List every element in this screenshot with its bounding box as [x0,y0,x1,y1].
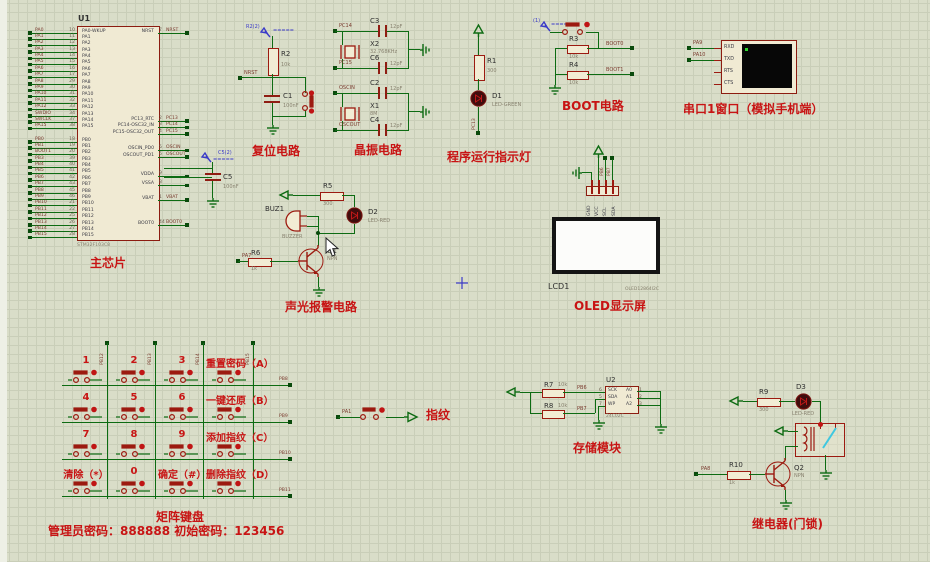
power-terminal-icon[interactable] [774,425,789,437]
pin-net-label: PA11 [35,98,46,103]
fingerprint-button-icon[interactable] [358,403,388,421]
pin-net-label: BOOT0 [166,220,182,225]
ground-icon[interactable] [779,500,793,510]
pin-net-label: OSCOUT [166,152,186,157]
resistor-r5[interactable] [320,192,344,201]
pin-name: PC15-OSC32_OUT [100,130,154,135]
storage-section: R7 10k R8 10k PB6 PB7 U2 6 SCK 5 SDA 7 W… [498,362,688,457]
nrst-net-label: NRST [244,70,257,76]
pin-name: PA12 [82,105,93,110]
r1-ref: R1 [487,57,496,65]
xtal-bot-net: PC15 [339,60,352,66]
pin-net-label: PA3 [35,47,44,52]
pin-net-label: PB5 [35,168,44,173]
reset-annotation: R2(2) [246,24,260,30]
terminal-pin-names: RXDTXDRTSCTS [724,42,734,90]
key-button-icon[interactable] [116,442,150,458]
pin-net-label: PA6 [35,66,44,71]
key-button-icon[interactable] [212,479,246,495]
r4-value: 10k [569,80,578,86]
pin-name: PB13 [82,221,94,226]
keypad-key[interactable]: 一键还原（B） [206,392,284,429]
lcd1-ref: LCD1 [548,283,569,291]
crosshair-icon [456,277,468,289]
cap-bot-ref: C4 [370,116,379,124]
chip-pin-row[interactable]: PB15 28 PB15 [28,234,158,240]
keypad-key[interactable]: 重置密码（A） [206,355,284,392]
pin-number: 40 [61,162,75,167]
keypad-key[interactable]: 删除指纹（D） [206,466,284,503]
keypad-key[interactable]: 3 [158,355,206,392]
pin-name: PA8 [82,80,91,85]
pin-net-label: PB13 [35,220,47,225]
pin-net-label: PA12 [35,104,46,109]
resistor-r3[interactable] [567,45,589,54]
oled-pin-names: GNDVCCSCLSDA [587,198,617,216]
keypad-key[interactable]: 添加指纹（C） [206,429,284,466]
pin-name: VDDA [100,172,154,177]
pin-net-label: PC14 [166,122,178,127]
r4-ref: R4 [569,61,578,69]
capacitor-icon[interactable] [378,124,387,136]
pin-number: 42 [61,175,75,180]
power-terminal-icon[interactable] [729,395,744,407]
pin-net-label: PB0 [35,137,44,142]
pin-net-label: PA5 [35,59,44,64]
ground-icon[interactable] [819,470,833,480]
pin-net-label: SWCLK [35,117,51,122]
keypad-key[interactable]: 0 [110,466,158,503]
pin-number: 30 [61,85,75,90]
pin-number: 11 [61,34,75,39]
c5-annotation-marks: ===== [213,157,234,163]
key-label: 4 [62,392,110,403]
key-button-icon[interactable] [212,368,246,384]
pin-number: 38 [61,123,75,128]
u2-part: 24C02C [606,414,624,420]
key-label: 6 [158,392,206,403]
cap-top-ref: C2 [370,79,379,87]
pin-net-label: PB15 [35,232,47,237]
pin-wire [158,33,186,34]
key-label: 1 [62,355,110,366]
keypad-label: 矩阵键盘 [156,511,204,524]
key-button-icon[interactable] [212,442,246,458]
pin-number: 29 [61,79,75,84]
r10-ref: R10 [729,461,743,469]
pin-net-label: PB10 [35,200,47,205]
ground-icon[interactable] [312,287,326,297]
pin-number: 28 [61,232,75,237]
pin-net-label: PB8 [35,188,44,193]
q2-ref: Q2 [794,464,804,472]
fingerprint-label: 指纹 [426,409,450,422]
buzzer-value: BUZZER [282,234,303,240]
pin-number: 19 [61,143,75,148]
led-d2-icon[interactable] [346,207,363,224]
keypad-key[interactable]: 6 [158,392,206,429]
key-button-icon[interactable] [68,405,102,421]
pin-name: PB11 [82,208,94,213]
keypad-grid: 1 2 [62,355,284,503]
key-label: 3 [158,355,206,366]
crystal-icon[interactable] [336,106,364,122]
storage-label: 存储模块 [573,442,621,455]
key-button-icon[interactable] [68,479,102,495]
pin-name: OSCOUT_PD1 [100,153,154,158]
pin-name: PA4 [82,54,91,59]
crystal-group: PC14 C3 12pF X2 32.768KHz [332,16,437,76]
eeprom-pin: A1 2 [498,395,648,402]
keypad-key[interactable]: 1 [62,355,110,392]
ground-icon[interactable] [266,125,280,135]
keypad-key[interactable]: 8 [110,429,158,466]
resistor-r10[interactable] [727,471,751,480]
pin-net-label: PC15 [166,129,178,134]
boot-circuit-label: BOOT电路 [562,100,624,113]
pin-net-label: PA2 [35,40,44,45]
oled-section: PB6 PB7 GNDVCCSCLSDA LCD1 OLED12864I2C O… [540,142,712,320]
oled-part: OLED12864I2C [625,287,659,293]
pin-net-label: SWDIO [35,111,51,116]
r9-value: 300 [759,407,769,413]
pin-number: 33 [61,104,75,109]
pin-wire [158,134,186,135]
ground-icon[interactable] [592,420,606,430]
r3-value: 10k [569,54,578,60]
pin-name: PB2 [82,150,91,155]
pin-name: PA15 [82,124,93,129]
pin-name: OSCIN_PD0 [100,146,154,151]
q2-value: NPN [794,473,805,479]
pin-name: PA9 [82,86,91,91]
pin-net-label: PB14 [35,226,47,231]
relay-lever-icon [821,426,838,450]
keypad-passwords: 管理员密码：888888 初始密码：123456 [48,525,284,538]
pin-name: PC13_RTC [100,117,154,122]
pin-name: PA5 [82,60,91,65]
pin-number: 43 [61,181,75,186]
pin-net-label: PA1 [35,34,44,39]
boot1-net-label: BOOT1 [606,67,623,73]
pa10-net-label: PA10 [693,52,705,58]
capacitor-icon[interactable] [378,25,387,37]
terminal-cursor [745,48,748,51]
pin-name: PA11 [82,99,93,104]
ground-icon[interactable] [654,424,668,434]
transistor-q2-icon[interactable] [765,458,791,490]
pc13-net-label: PC13 [472,110,478,130]
pin-net-label: PB1 [35,143,44,148]
ground-icon[interactable] [420,105,430,119]
pin-net-label: PB3 [35,156,44,161]
pin-pad [185,184,189,188]
pin-net-label: PA9 [35,85,44,90]
oled-pin-name: VCC [595,198,600,216]
pin-number: 12 [61,40,75,45]
terminal-pin-name: RXD [724,42,734,54]
pin-pad [185,126,189,130]
buzzer-icon[interactable] [285,210,309,232]
key-button-icon[interactable] [116,368,150,384]
eeprom-pin: A0 1 [498,388,648,395]
relay-label: 继电器(门锁) [752,518,823,531]
key-button-icon[interactable] [164,442,198,458]
mouse-cursor [325,238,339,258]
keypad-key[interactable]: 确定（#） [158,466,206,503]
pin-wire [158,225,186,226]
pin-wire [31,237,77,238]
pin-name: PB10 [82,201,94,206]
pin-number: 34 [61,111,75,116]
pin-number: 21 [61,200,75,205]
pin-name: BOOT0 [100,221,154,226]
keypad-key[interactable]: 7 [62,429,110,466]
capacitor-c1[interactable] [264,95,280,103]
capacitor-icon[interactable] [378,62,387,74]
pin-net-label: VBAT [166,195,178,200]
c1-ref: C1 [283,92,292,100]
pin-name: PA1 [82,35,91,40]
pin-wire [158,157,186,158]
resistor-r2[interactable] [268,48,279,76]
cap-top-ref: C3 [370,17,379,25]
ground-icon[interactable] [570,166,582,180]
resistor-r8[interactable] [542,410,565,419]
pin-name: PB14 [82,227,94,232]
cap-bot-value: 12pF [390,123,402,129]
r5-value: 300 [323,201,333,207]
key-button-icon[interactable] [116,479,150,495]
key-label: 0 [110,466,158,477]
pin-name: PB5 [82,169,91,174]
r2-value: 10k [281,62,290,68]
pin-name: PA2 [82,41,91,46]
pin-number: 31 [61,91,75,96]
pin-pad [185,223,189,227]
pin-number: 39 [61,156,75,161]
cap-top-value: 12pF [390,86,402,92]
pin-name: PA14 [82,118,93,123]
eeprom-pin: A2 3 [498,402,648,409]
pin-net-label: PB6 [35,175,44,180]
boot0-net-label: BOOT0 [606,41,623,47]
chip-part-number: STM32F103C8 [77,243,110,249]
serial-terminal-section: PA9 PA10 RXDTXDRTSCTS 串口1窗口（模拟手机端） [678,32,830,120]
pin-wire [158,200,186,201]
pin-net-label: PA7 [35,72,44,77]
terminal-pin-name: CTS [724,78,734,90]
pin-name: PB4 [82,163,91,168]
pin-name: PA6 [82,67,91,72]
keypad-key[interactable]: 2 [110,355,158,392]
output-terminal-icon[interactable] [404,411,418,423]
xtal-ref: X2 [370,40,379,48]
pin-net-label: OSCIN [166,145,181,150]
pin-name: PB3 [82,157,91,162]
cap-top-value: 12pF [390,24,402,30]
terminal-pin-name: TXD [724,54,734,66]
pin-number: 45 [61,188,75,193]
pin-net-label: PB4 [35,162,44,167]
d3-value: LED-RED [792,411,814,417]
r10-value: 1k [729,480,735,486]
power-terminal-icon[interactable] [279,189,294,201]
pin-name: PB15 [82,233,94,238]
pin-number: 37 [61,117,75,122]
key-button-icon[interactable] [116,405,150,421]
keypad-section: PB12PB13PB14PB15 PB8PB9PB10PB11 1 [48,333,343,548]
pin-number: 26 [61,220,75,225]
keypad-key[interactable]: 4 [62,392,110,429]
indicator-label: 程序运行指示灯 [447,151,531,164]
power-terminal-icon[interactable] [472,24,485,38]
key-button-icon[interactable] [164,405,198,421]
reset-annotation-marks: ===== [273,28,294,34]
ground-icon[interactable] [548,85,562,95]
key-button-icon[interactable] [164,368,198,384]
oled-label: OLED显示屏 [574,300,646,313]
pin-pad [185,132,189,136]
proteus-schematic-canvas[interactable]: U1 PA0 10 PA0-WKUP PA1 11 PA1 [0,0,930,562]
key-button-icon[interactable] [68,368,102,384]
u2-ref: U2 [606,376,616,384]
crystal-icon[interactable] [336,44,364,60]
pin-name: PC14-OSC32_IN [100,123,154,128]
key-label: 2 [110,355,158,366]
keypad-key[interactable]: 清除（*） [62,466,110,503]
pin-name: PA7 [82,73,91,78]
resistor-r4[interactable] [567,71,589,80]
terminal-pin-name: RTS [724,66,734,78]
pin-number: 16 [61,66,75,71]
fingerprint-section: PA1 指纹 [334,398,474,438]
r9-ref: R9 [759,388,768,396]
pin-pad [185,198,189,202]
reset-pushbutton-icon[interactable] [298,90,318,114]
pin-number: 15 [61,59,75,64]
d1-value: LED-GREEN [492,102,521,108]
pin-pad [185,155,189,159]
ground-icon[interactable] [420,43,430,57]
pin-net-label: PB7 [35,181,44,186]
oled-pin-name: SDA [612,198,617,216]
crystal-group: OSCIN C2 12pF X1 8M [332,78,437,138]
pin-number: 41 [61,168,75,173]
pin-net-label: PA15 [35,123,46,128]
pin-name: PB8 [82,189,91,194]
c5-ref: C5 [223,173,232,181]
pin-net-label: BOOT1 [35,149,51,154]
boot-circuit-section: (1) ===== R3 10k BOOT0 R4 10k BOOT1 BOOT… [532,12,667,112]
pin-net-label: PA10 [35,91,46,96]
r1-value: 300 [487,68,497,74]
r6-ref: R6 [251,249,260,257]
pin-name: PB0 [82,138,91,143]
pin-name: PB12 [82,214,94,219]
d3-ref: D3 [796,383,806,391]
pin-net-label: PB12 [35,213,47,218]
pin-wire [31,128,77,129]
keypad-key[interactable]: 5 [110,392,158,429]
pa1-net-label: PA1 [342,409,351,415]
pin-number: 22 [61,207,75,212]
pin-name: NRST [100,29,154,34]
led-d3-icon[interactable] [795,393,812,410]
power-terminal-icon[interactable] [260,26,272,38]
pin-number: 20 [61,149,75,154]
pin-number: 25 [61,213,75,218]
c1-value: 100nF [283,103,299,109]
keypad-key[interactable]: 9 [158,429,206,466]
pin-net-label: PA8 [35,79,44,84]
resistor-r1[interactable] [474,55,485,81]
relay-coil-icon [798,426,818,452]
key-label: 7 [62,429,110,440]
oled-display[interactable] [552,217,660,274]
boot-pushbutton-icon[interactable] [561,20,593,36]
transistor-q1-icon[interactable] [298,245,324,277]
ground-icon[interactable] [206,198,220,208]
pin-name: PB9 [82,195,91,200]
pin-net-label: PB9 [35,194,44,199]
resistor-r9[interactable] [757,398,781,407]
serial-label: 串口1窗口（模拟手机端） [683,103,823,116]
key-button-icon[interactable] [212,405,246,421]
cap-bot-ref: C6 [370,54,379,62]
c5-annotation: C5(2) [218,150,232,156]
key-button-icon[interactable] [164,479,198,495]
pa9-net-label: PA9 [693,40,702,46]
capacitor-icon[interactable] [378,87,387,99]
pin-number: 14 [61,53,75,58]
eeprom-right-pins: A0 1 A1 2 A2 3 [498,388,648,409]
cap-bot-value: 12pF [390,61,402,67]
capacitor-c5[interactable] [205,173,221,181]
pin-number: 13 [61,47,75,52]
pin-pad [185,31,189,35]
xtal-ref: X1 [370,102,379,110]
sheet-edge [0,0,7,562]
buz1-ref: BUZ1 [265,205,284,213]
pin-wire [158,185,186,186]
pin-name: PB6 [82,176,91,181]
pin-net-label: PA4 [35,53,44,58]
pin-name: VSSA [100,181,154,186]
xtal-bot-net: OSCOUT [339,122,360,128]
pa8-net-label: PA8 [701,466,710,472]
relay-section: R9 300 D3 LED-RED [682,378,887,548]
crystal-circuit-label: 晶振电路 [354,144,402,157]
oled-pin-name: SCL [603,198,608,216]
r5-ref: R5 [323,182,332,190]
pin-net-label: PA0 [35,28,44,33]
led-d1-icon[interactable] [470,90,487,107]
pin-number: 32 [61,98,75,103]
pin-net-label: PC13 [166,116,178,121]
pin-name: PA10 [82,92,93,97]
pin-name: PB7 [82,182,91,187]
key-label: 5 [110,392,158,403]
r3-ref: R3 [569,35,578,43]
crystal-circuit-section: PC14 C3 12pF X2 32.768KHz [332,16,452,158]
pin-net-label: PB11 [35,207,47,212]
oled-pin-name: GND [587,198,592,216]
alarm-circuit-label: 声光报警电路 [285,301,357,314]
pin-name: PA13 [82,112,93,117]
terminal-screen[interactable] [742,44,792,88]
key-button-icon[interactable] [68,442,102,458]
